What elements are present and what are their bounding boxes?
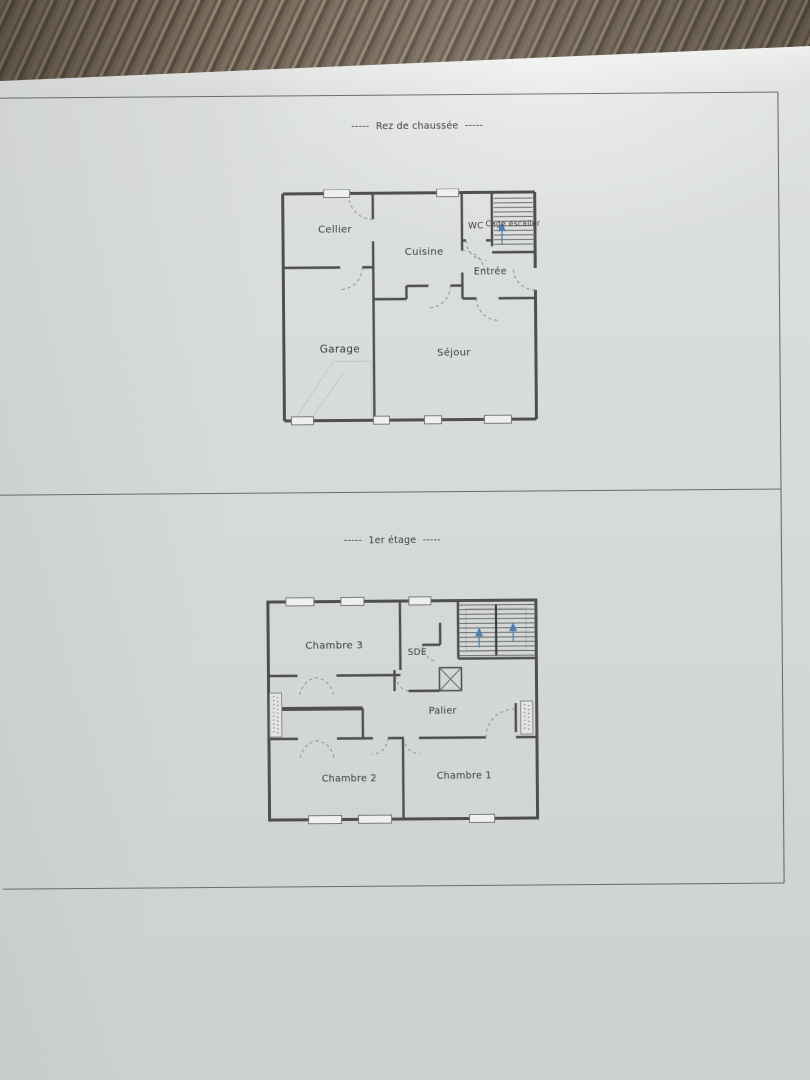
room-label-chambre2: Chambre 2 bbox=[322, 773, 377, 784]
photo-of-floor-plan-document: ----- Rez de chaussée ----- ----- 1er ét… bbox=[0, 0, 810, 1080]
room-label-sejour: Séjour bbox=[437, 346, 471, 358]
room-label-sde: SDE bbox=[408, 648, 427, 658]
1er-hatched-strip-left bbox=[270, 693, 282, 737]
1er-shaft-box bbox=[439, 668, 461, 691]
printed-content: ----- Rez de chaussée ----- ----- 1er ét… bbox=[0, 0, 810, 1080]
1er-staircase bbox=[459, 604, 535, 656]
floor-plan-rdc: Cellier Cuisine WC Cage escalier Entrée … bbox=[280, 188, 542, 428]
room-label-cellier: Cellier bbox=[318, 224, 353, 235]
room-label-chambre3: Chambre 3 bbox=[305, 640, 363, 651]
room-label-cuisine: Cuisine bbox=[405, 247, 444, 258]
room-label-cage-escalier: Cage escalier bbox=[486, 219, 541, 228]
1er-door-arcs bbox=[299, 644, 514, 758]
floor-title-rdc: ----- Rez de chaussée ----- bbox=[327, 120, 507, 132]
room-label-chambre1: Chambre 1 bbox=[437, 770, 492, 781]
1er-hatched-strip-right bbox=[521, 701, 533, 734]
stair-up-arrow-left-icon bbox=[475, 627, 483, 636]
room-label-wc: WC bbox=[468, 221, 484, 231]
rdc-door-arcs bbox=[340, 196, 536, 322]
rdc-garage-ghost-lines bbox=[297, 361, 371, 416]
floor-title-1er: ----- 1er étage ----- bbox=[312, 534, 472, 546]
room-label-garage: Garage bbox=[320, 343, 360, 355]
1er-closet-wall bbox=[282, 708, 363, 709]
floor-plan-1er-etage: Chambre 3 SDE Palier Chambre 2 Chambre 1 bbox=[265, 595, 541, 825]
1er-stair-edge bbox=[458, 658, 536, 659]
room-label-entree: Entrée bbox=[474, 266, 507, 277]
room-label-palier: Palier bbox=[429, 706, 457, 717]
